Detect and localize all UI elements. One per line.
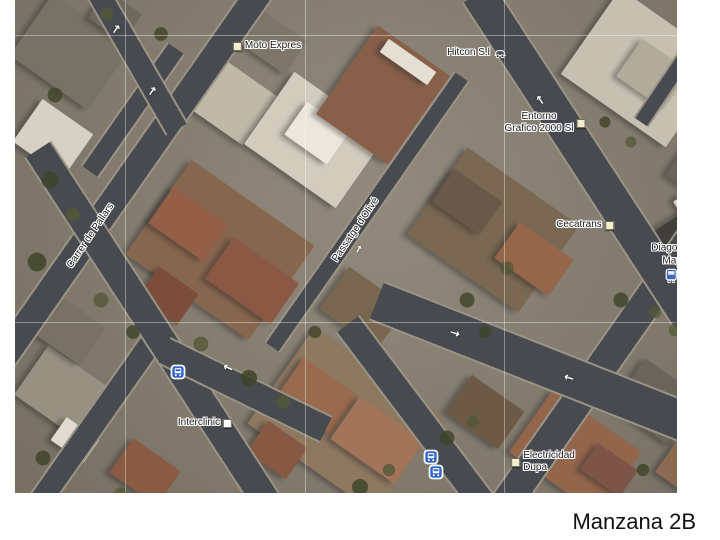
poi-moto-expres: Moto Expres [233, 40, 301, 52]
street-label-passatge-olive: Passatge d'Olivé [330, 196, 382, 265]
building [446, 375, 525, 449]
bus-stop-icon [429, 465, 444, 480]
poi-interclinic: Interclinic [178, 417, 232, 429]
caption: Manzana 2B [572, 509, 696, 535]
poi-label: Hitcon S.l [447, 47, 490, 59]
poi-entorno-grafico: Entorno Grafico 2000 Sl [505, 111, 586, 135]
bus-stop-icon [424, 450, 439, 465]
poi-label: Dupa [523, 462, 547, 474]
poi-square-marker-icon [511, 458, 520, 467]
bus-stop-icon [171, 365, 186, 380]
poi-electricidad-dupa: Electricidad Dupa [511, 450, 575, 474]
poi-label: Interclinic [178, 417, 220, 429]
poi-label: Diagonal [651, 243, 677, 255]
poi-cecatrans: Cecatrans [556, 219, 614, 231]
poi-label: Moto Expres [245, 40, 301, 52]
poi-label: Electricidad [523, 450, 575, 462]
poi-square-marker-icon [605, 221, 614, 230]
building [109, 438, 181, 493]
map-gridline [125, 0, 126, 493]
poi-diagonal-mar: Diagonal Mar [651, 243, 677, 284]
poi-label: Entorno [521, 111, 556, 123]
poi-label: Cecatrans [556, 219, 602, 231]
tram-station-icon [665, 269, 677, 284]
car-icon [493, 48, 507, 59]
poi-label: Grafico 2000 Sl [505, 123, 574, 135]
poi-square-marker-icon [223, 419, 232, 428]
poi-hitcon: Hitcon S.l [447, 47, 507, 59]
building [673, 195, 677, 217]
poi-square-marker-icon [576, 119, 585, 128]
poi-label: Mar [662, 256, 677, 268]
building [655, 439, 677, 493]
satellite-map: → → → → → → → Carrer de Pallars Passatge… [15, 0, 677, 493]
poi-square-marker-icon [233, 42, 242, 51]
slide: → → → → → → → Carrer de Pallars Passatge… [0, 0, 720, 540]
